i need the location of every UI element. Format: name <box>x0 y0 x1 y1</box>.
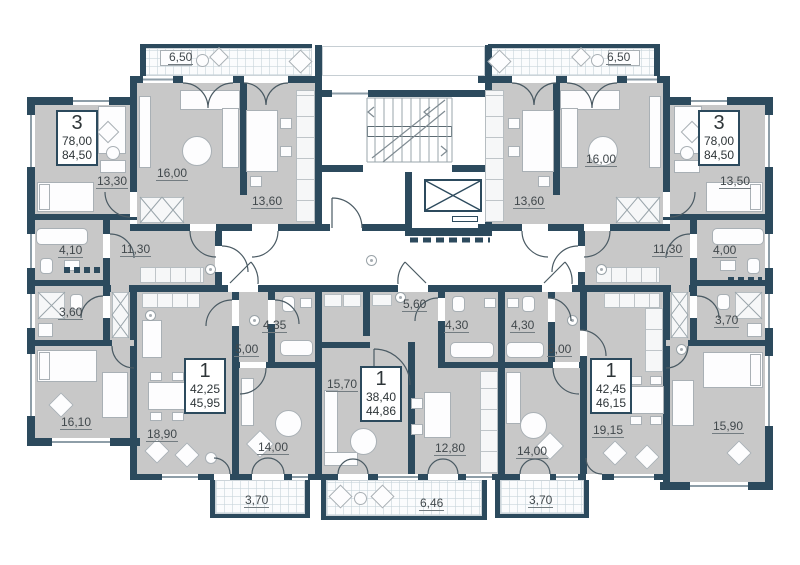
room-area-label: 15,70 <box>326 377 358 392</box>
room-area-label: 4,00 <box>712 243 737 258</box>
room-area-label: 13,60 <box>513 194 545 209</box>
room-area-label: 5,60 <box>402 297 427 312</box>
room-area-label: 3,70 <box>244 493 269 508</box>
floor-plan: 3 78,00 84,50 3 78,00 84,50 1 42,25 45,9… <box>0 0 800 565</box>
room-area-label: 16,00 <box>585 152 617 167</box>
room-area-label: 18,90 <box>146 427 178 442</box>
room-area-label: 5,00 <box>547 342 572 357</box>
room-area-label: 11,30 <box>120 242 151 257</box>
room-area-label: 15,90 <box>712 419 744 434</box>
room-area-label: 6,46 <box>419 496 444 511</box>
room-area-label: 19,15 <box>592 423 624 438</box>
room-area-label: 3,70 <box>528 493 553 508</box>
room-area-label: 4,35 <box>262 318 287 333</box>
room-area-label: 14,00 <box>257 440 289 455</box>
room-area-label: 16,00 <box>156 166 188 181</box>
room-area-label: 6,50 <box>168 50 193 65</box>
room-area-label: 12,80 <box>434 441 466 456</box>
room-area-label: 3,70 <box>714 313 739 328</box>
room-area-label: 3,60 <box>58 305 83 320</box>
room-area-label: 16,10 <box>60 415 92 430</box>
room-area-label: 4,30 <box>444 318 469 333</box>
room-area-label: 6,50 <box>606 50 631 65</box>
room-area-label: 14,00 <box>516 444 548 459</box>
room-area-label: 5,00 <box>234 342 259 357</box>
room-area-label: 13,60 <box>251 194 283 209</box>
room-area-label: 4,30 <box>510 318 535 333</box>
area-labels: 6,506,5013,3016,0013,6016,0013,5013,604,… <box>0 0 800 565</box>
room-area-label: 11,30 <box>652 242 683 257</box>
room-area-label: 13,30 <box>96 174 128 189</box>
room-area-label: 4,10 <box>58 243 83 258</box>
room-area-label: 13,50 <box>719 174 751 189</box>
